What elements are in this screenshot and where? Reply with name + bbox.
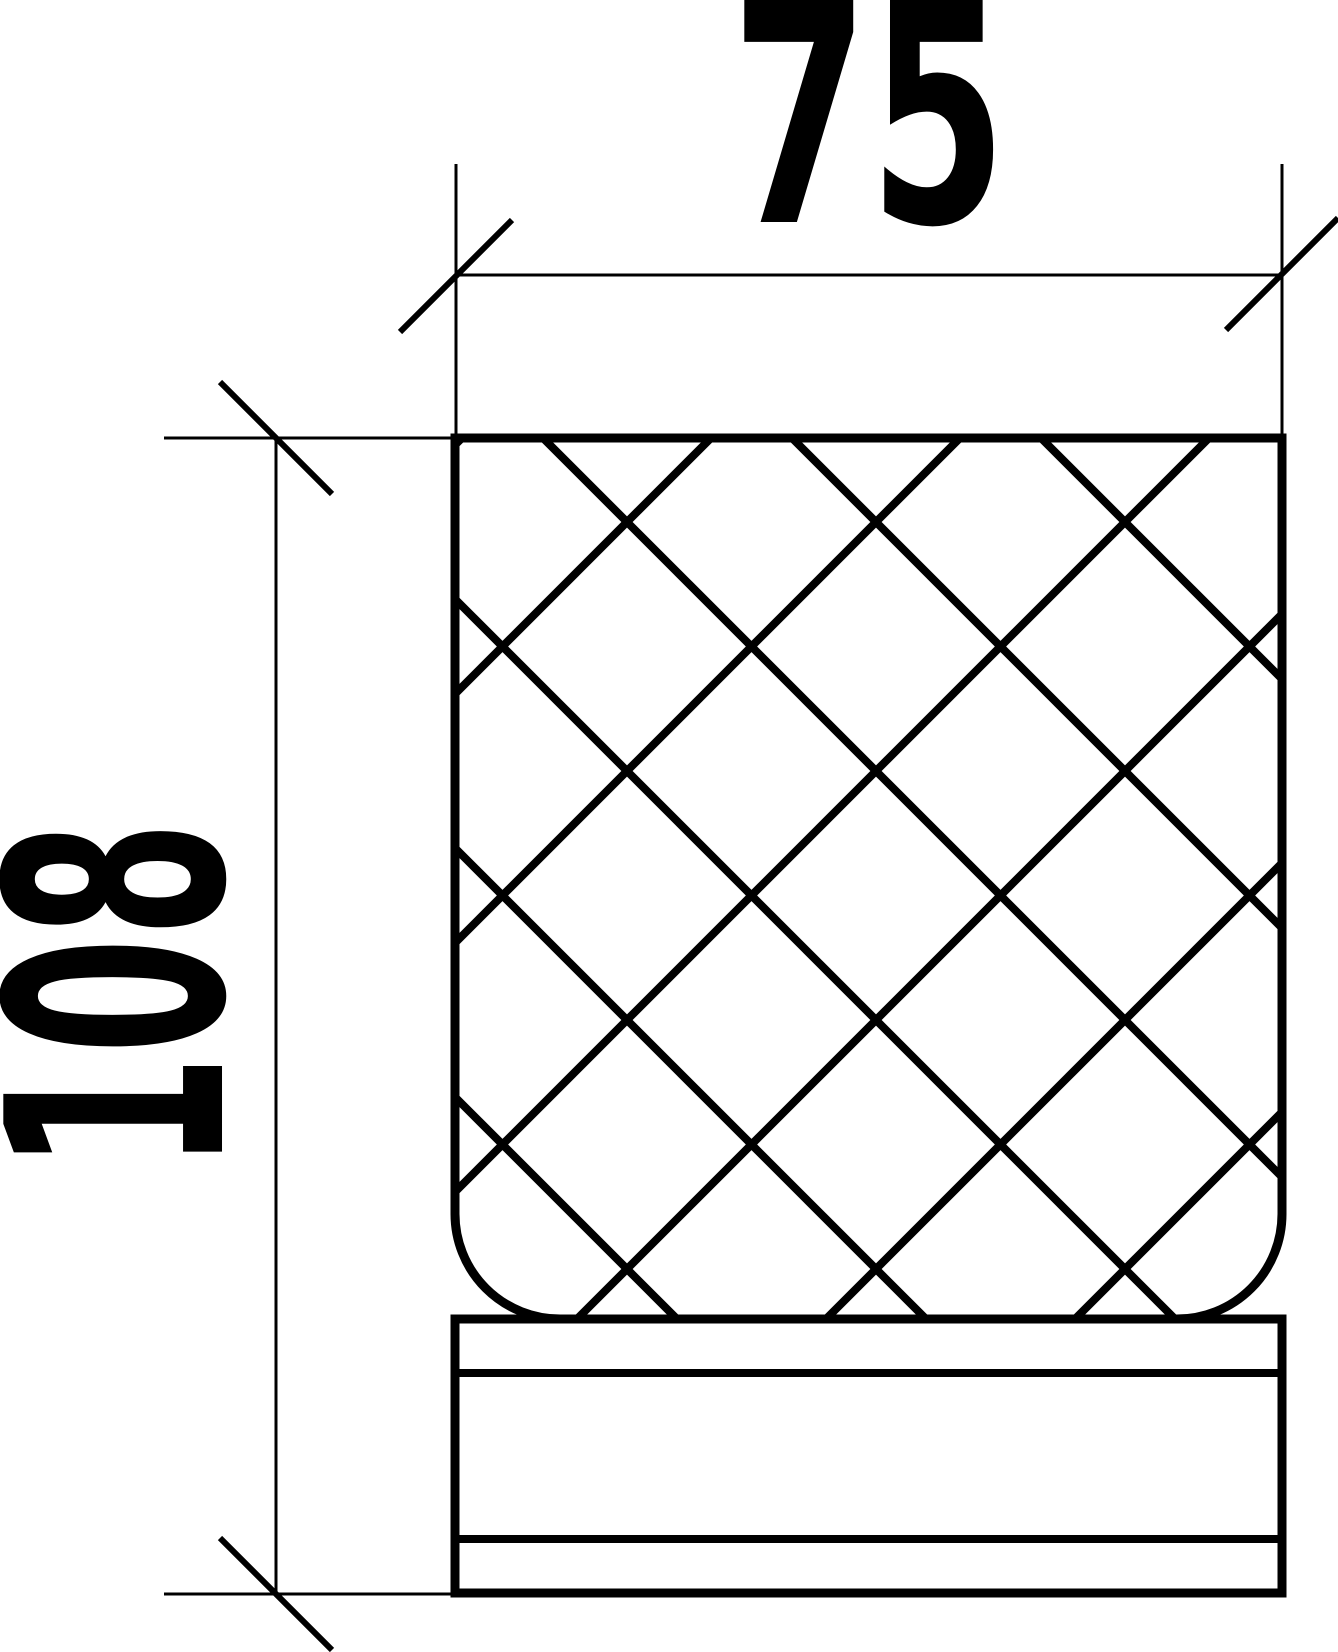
base-plate	[455, 1319, 1282, 1593]
width-dimension-label: 75	[731, 0, 1007, 294]
technical-drawing-canvas: 75 108	[0, 0, 1338, 1652]
drawing-page: 75 108	[0, 0, 1338, 1652]
height-dimension-label: 108	[0, 821, 294, 1172]
